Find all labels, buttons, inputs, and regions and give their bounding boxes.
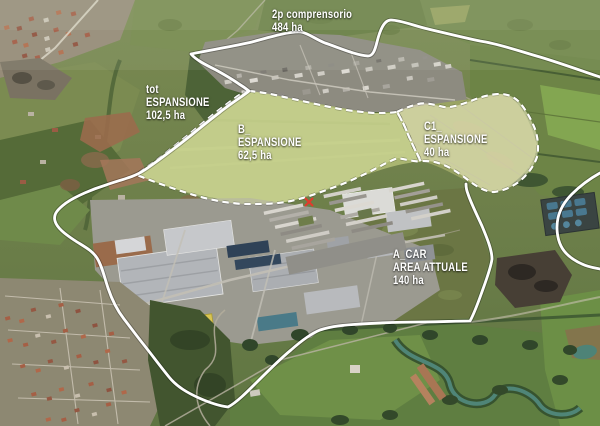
label-a-car: A_CAR AREA ATTUALE 140 ha [393,249,468,288]
label-acar-prefix: A_CAR [393,249,468,262]
label-comprensorio: 2p comprensorio 484 ha [272,9,352,35]
label-c1-espansione: C1_ ESPANSIONE 40 ha [424,121,488,160]
label-tot-prefix: tot [146,84,210,97]
label-b-prefix: B_ [238,124,302,137]
label-b-espansione: B_ ESPANSIONE 62,5 ha [238,124,302,163]
label-acar-area: 140 ha [393,275,468,288]
label-c1-area: 40 ha [424,147,488,160]
label-b-name: ESPANSIONE [238,137,302,150]
label-c1-name: ESPANSIONE [424,134,488,147]
aerial-map [0,0,600,426]
label-comprensorio-name: 2p comprensorio [272,9,352,22]
label-tot-area: 102,5 ha [146,110,210,123]
label-comprensorio-area: 484 ha [272,22,352,35]
label-c1-prefix: C1_ [424,121,488,134]
label-tot-espansione: tot ESPANSIONE 102,5 ha [146,84,210,123]
map-background [0,0,600,426]
label-acar-name: AREA ATTUALE [393,262,468,275]
label-b-area: 62,5 ha [238,150,302,163]
map-canvas: 2p comprensorio 484 ha tot ESPANSIONE 10… [0,0,600,426]
label-tot-name: ESPANSIONE [146,97,210,110]
